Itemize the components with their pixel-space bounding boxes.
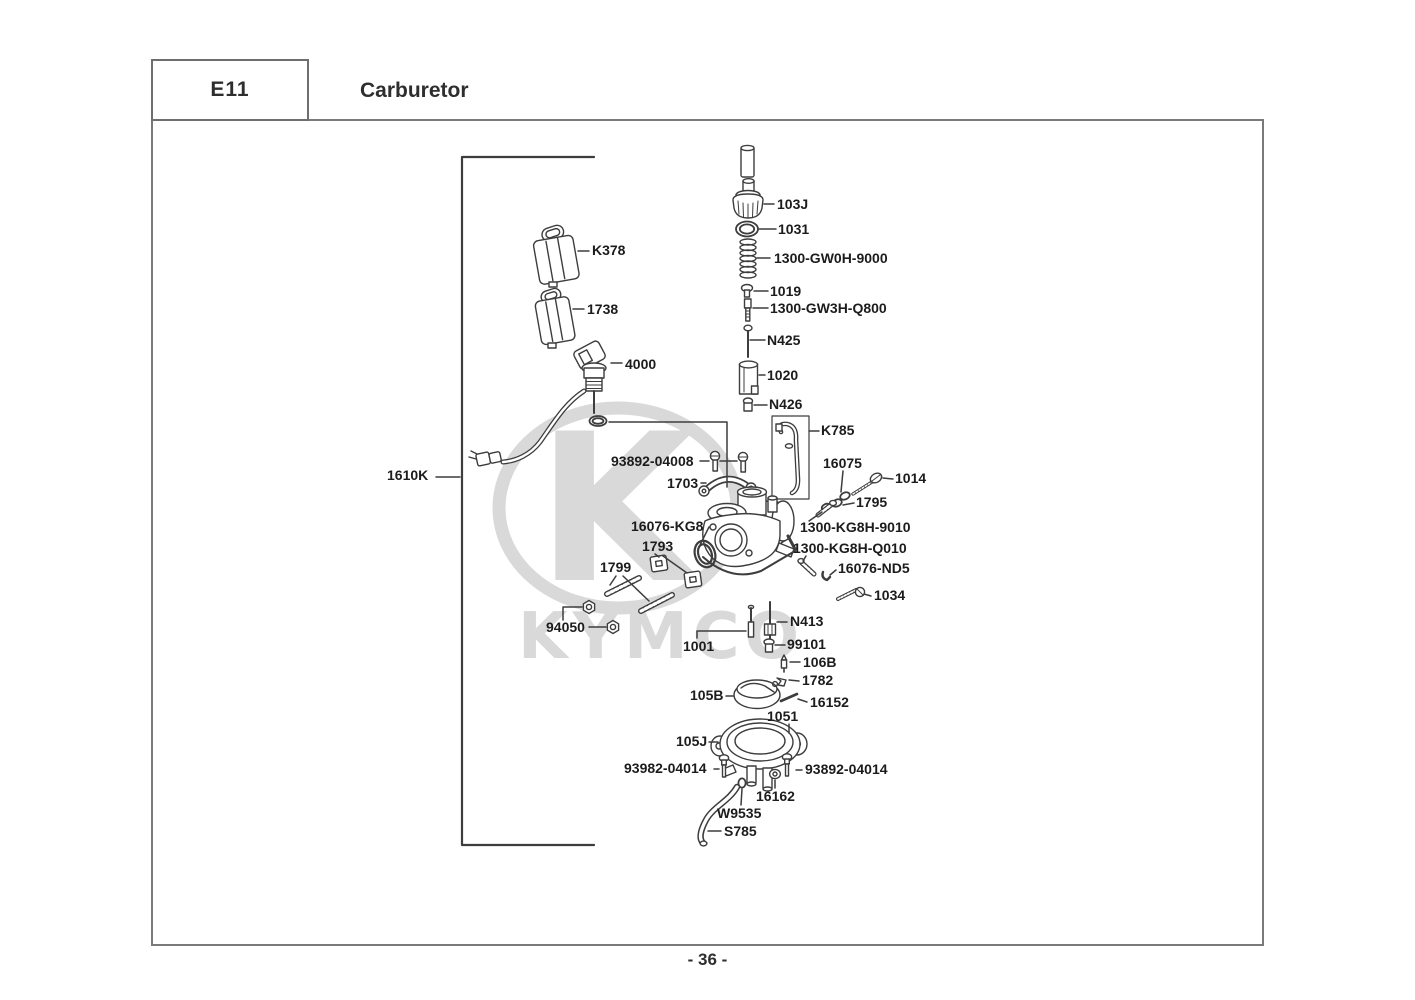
part-label-93982-04014: 93982-04014 (624, 761, 707, 776)
part-label-1793: 1793 (642, 539, 673, 554)
part-label-1795: 1795 (856, 495, 887, 510)
part-label-k785: K785 (821, 423, 854, 438)
part-label-105b: 105B (690, 688, 723, 703)
page-title: Carburetor (360, 79, 469, 103)
part-label-16076-kg8: 16076-KG8 (631, 519, 703, 534)
part-label-103j: 103J (777, 197, 808, 212)
part-label-106b: 106B (803, 655, 836, 670)
part-label-93892-04008: 93892-04008 (611, 454, 694, 469)
part-label-99101: 99101 (787, 637, 826, 652)
part-label-1300-kg8h-q010: 1300-KG8H-Q010 (793, 541, 907, 556)
part-label-1799: 1799 (600, 560, 631, 575)
part-label-1738: 1738 (587, 302, 618, 317)
part-label-1020: 1020 (767, 368, 798, 383)
part-label-105j: 105J (676, 734, 707, 749)
part-label-1051: 1051 (767, 709, 798, 724)
part-label-1019: 1019 (770, 284, 801, 299)
part-label-n425: N425 (767, 333, 800, 348)
part-label-1300-gw3h-q800: 1300-GW3H-Q800 (770, 301, 887, 316)
part-label-4000: 4000 (625, 357, 656, 372)
part-label-1001: 1001 (683, 639, 714, 654)
part-label-n426: N426 (769, 397, 802, 412)
section-code-box: E11 (151, 59, 309, 121)
part-label-93892-04014: 93892-04014 (805, 762, 888, 777)
page-number: - 36 - (0, 950, 1415, 970)
section-code: E11 (210, 78, 249, 102)
part-label-16076-nd5: 16076-ND5 (838, 561, 910, 576)
part-label-n413: N413 (790, 614, 823, 629)
part-label-1300-kg8h-9010: 1300-KG8H-9010 (800, 520, 911, 535)
diagram-frame (151, 119, 1264, 946)
part-label-1034: 1034 (874, 588, 905, 603)
part-label-k378: K378 (592, 243, 625, 258)
part-label-1610k: 1610K (387, 468, 428, 483)
part-label-1782: 1782 (802, 673, 833, 688)
parts-catalog-page: E11 Carburetor K KYMCO (0, 0, 1415, 1000)
part-label-16162: 16162 (756, 789, 795, 804)
part-label-16075: 16075 (823, 456, 862, 471)
part-label-94050: 94050 (546, 620, 585, 635)
part-label-1031: 1031 (778, 222, 809, 237)
part-label-s785: S785 (724, 824, 757, 839)
part-label-1014: 1014 (895, 471, 926, 486)
part-label-16152: 16152 (810, 695, 849, 710)
part-label-w9535: W9535 (717, 806, 761, 821)
part-label-1703: 1703 (667, 476, 698, 491)
part-label-1300-gw0h-9000: 1300-GW0H-9000 (774, 251, 888, 266)
